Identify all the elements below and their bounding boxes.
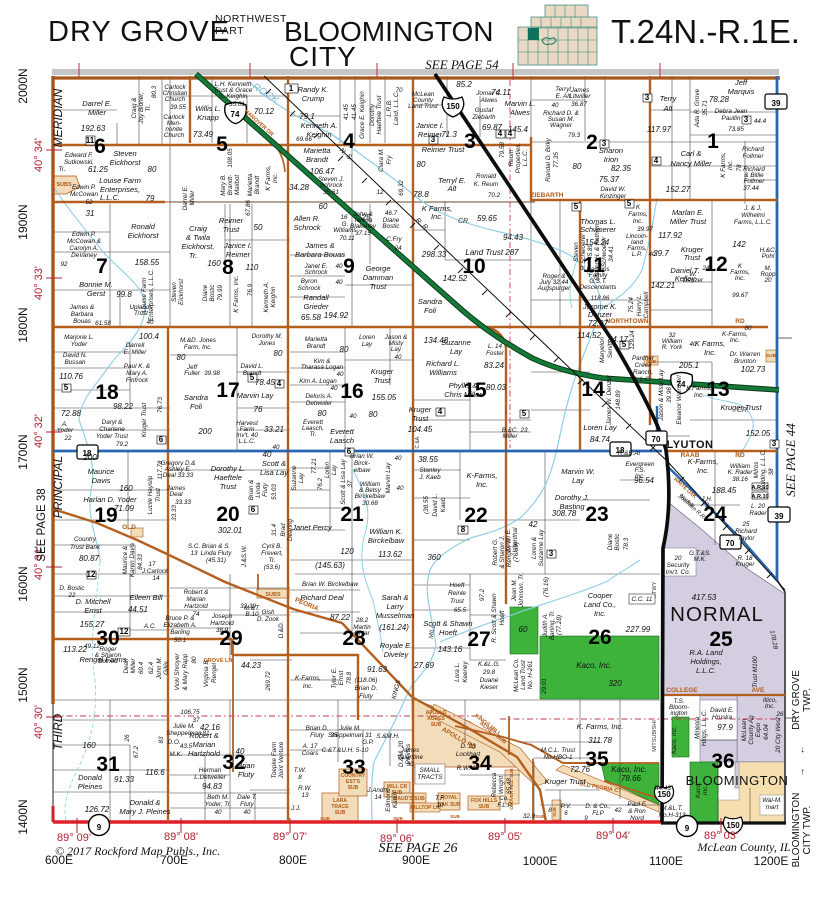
svg-text:OLD: OLD [122,524,136,531]
svg-text:Debra Jean: Debra Jean [715,108,748,115]
svg-text:Kruger: Kruger [409,405,432,414]
svg-text:Ernst: Ernst [84,606,102,615]
svg-text:1500N: 1500N [16,667,30,702]
svg-text:(77.28): (77.28) [556,615,563,635]
svg-text:Holdings,: Holdings, [690,657,721,666]
svg-text:142.21: 142.21 [651,281,675,290]
svg-text:Gerst: Gerst [87,289,106,298]
svg-text:Marvin L.: Marvin L. [505,99,536,108]
svg-text:Kaco, Inc.: Kaco, Inc. [611,765,647,774]
svg-text:31.4: 31.4 [271,523,278,536]
svg-text:Wright: Wright [498,776,505,794]
svg-text:Jeff: Jeff [734,78,748,87]
svg-text:Virginia B.: Virginia B. [203,659,210,688]
svg-text:Steven: Steven [113,149,136,158]
svg-text:78.8: 78.8 [413,190,429,199]
svg-text:D. 23: D. 23 [460,743,476,750]
svg-text:S. Keighin: S. Keighin [219,93,248,100]
svg-text:Louise Farm: Louise Farm [141,278,148,313]
svg-text:Maurice: Maurice [88,467,115,476]
svg-text:SEE PAGE 26: SEE PAGE 26 [378,841,457,856]
svg-text:Maurice &: Maurice & [122,546,129,574]
svg-text:Hoeft: Hoeft [499,610,506,625]
svg-text:Grieder: Grieder [303,302,329,311]
svg-text:155.05: 155.05 [372,393,397,402]
svg-text:Alwes: Alwes [480,97,499,104]
svg-text:Linda: Linda [255,482,262,498]
svg-text:Enterprises, L.L.C.: Enterprises, L.L.C. [148,269,155,321]
svg-text:T.F.: T.F. [435,795,445,802]
svg-text:Royale E.: Royale E. [380,641,413,650]
svg-text:Foli: Foli [424,306,436,315]
svg-text:26: 26 [124,734,131,743]
svg-text:24: 24 [393,245,402,252]
svg-text:Marvin Lay: Marvin Lay [237,391,275,400]
svg-text:320: 320 [608,679,622,688]
svg-text:Gillis: Gillis [163,660,170,674]
svg-text:Farm, Inc.: Farm, Inc. [184,344,212,351]
svg-text:Kenneth A.: Kenneth A. [263,282,270,313]
svg-text:5: 5 [574,202,579,211]
svg-text:78.8: 78.8 [346,671,353,684]
svg-text:74: 74 [231,110,240,119]
svg-text:150: 150 [726,821,740,830]
svg-text:78: 78 [736,164,743,172]
svg-text:Elizabeth A.: Elizabeth A. [163,622,196,629]
svg-text:J. Kaeb: J. Kaeb [418,474,441,481]
svg-text:35.01: 35.01 [229,101,245,108]
svg-text:24: 24 [701,265,710,272]
svg-text:Grace E. Keighin: Grace E. Keighin [359,91,366,139]
svg-text:9: 9 [685,824,690,833]
svg-text:Bostic: Bostic [614,533,621,551]
svg-text:Birckelbaw: Birckelbaw [368,536,405,545]
svg-text:94.43: 94.43 [503,233,524,242]
svg-text:Inc.: Inc. [476,480,488,489]
svg-text:MITSUBISHI: MITSUBISHI [652,720,658,752]
svg-text:William K.: William K. [369,527,402,536]
svg-text:James &: James & [304,241,334,250]
svg-text:46.7: 46.7 [385,210,398,217]
svg-text:Tr.: Tr. [269,557,276,564]
svg-text:89° 08': 89° 08' [164,831,198,843]
svg-text:Bouas: Bouas [73,318,92,325]
svg-text:Trust: Trust [374,376,391,385]
svg-text:R.W. 13: R.W. 13 [457,765,480,772]
svg-text:Richard: Richard [742,146,764,153]
svg-text:Campbell: Campbell [643,291,650,318]
svg-text:Eickhorst: Eickhorst [128,231,160,240]
svg-text:Brandt: Brandt [307,343,326,350]
svg-text:40: 40 [335,279,343,286]
svg-text:SMALL: SMALL [420,767,441,774]
svg-text:Hartzold: Hartzold [184,603,208,610]
svg-text:53.03: 53.03 [271,484,278,500]
svg-text:No. H-261: No. H-261 [527,661,534,690]
svg-text:SUB: SUB [450,814,460,819]
svg-text:Land Trust 287: Land Trust 287 [465,248,519,257]
svg-text:7: 7 [96,255,108,278]
svg-text:148.89: 148.89 [615,390,622,410]
svg-text:188.45: 188.45 [712,486,737,495]
svg-text:75.24: 75.24 [628,297,635,313]
svg-text:Tr.: Tr. [59,166,66,173]
svg-text:M.&D. Jones: M.&D. Jones [180,337,217,344]
svg-text:71.3: 71.3 [441,130,457,139]
svg-text:Mary A.: Mary A. [126,370,147,377]
svg-text:K-Farms,: K-Farms, [688,457,719,466]
svg-text:1600N: 1600N [16,566,30,601]
svg-text:89° 04': 89° 04' [596,830,630,842]
svg-text:Diane: Diane [202,284,209,301]
svg-text:2: 2 [704,502,709,509]
svg-text:360: 360 [427,553,441,562]
svg-text:79: 79 [146,194,155,203]
svg-text:Rengel: Rengel [211,662,218,683]
svg-text:Schrock: Schrock [298,285,322,292]
svg-text:79.3: 79.3 [568,132,581,139]
svg-text:Duane: Duane [480,677,499,684]
svg-text:Inc.: Inc. [594,609,606,618]
svg-text:Church: Church [165,96,186,103]
svg-text:Louise Farm: Louise Farm [99,176,141,185]
svg-text:9: 9 [97,823,102,832]
svg-text:Brandt-: Brandt- [227,175,234,196]
svg-text:80: 80 [274,349,283,358]
svg-text:13: 13 [301,792,309,799]
svg-text:SUB: SUB [335,810,346,816]
svg-text:20 City West: 20 City West [775,717,782,754]
svg-text:106.47: 106.47 [310,167,335,176]
svg-text:Eickhorst: Eickhorst [110,158,142,167]
svg-text:Dorothy M.: Dorothy M. [252,333,283,340]
svg-text:Eileen Bill: Eileen Bill [130,593,163,602]
svg-text:Barling: Barling [170,629,190,636]
svg-text:298.33: 298.33 [421,250,447,259]
svg-text:(161.24): (161.24) [379,623,409,632]
svg-text:41.45: 41.45 [343,104,350,120]
svg-text:PART: PART [215,25,244,37]
svg-text:Darrell: Darrell [126,342,145,349]
svg-text:Rengel, Tr.: Rengel, Tr. [506,537,513,567]
svg-text:32.9: 32.9 [523,813,536,820]
svg-text:Marian: Marian [186,596,206,603]
svg-text:C.&T.&U.H. 5-10: C.&T.&U.H. 5-10 [322,747,369,754]
svg-text:L.L.C.: L.L.C. [239,438,256,445]
svg-text:Diane: Diane [607,533,614,550]
svg-text:Pleines: Pleines [405,743,412,765]
svg-text:79.2: 79.2 [116,441,129,448]
svg-text:38: 38 [768,468,775,476]
svg-text:Taylor: Taylor [738,535,756,542]
svg-text:M.K.: M.K. [694,556,707,563]
svg-text:40: 40 [336,371,344,378]
svg-text:L.P.: L.P. [632,251,642,258]
svg-text:Kruger: Kruger [371,367,394,376]
svg-text:Foster: Foster [486,350,505,357]
svg-text:Harlan D. Yoder: Harlan D. Yoder [83,495,137,504]
svg-text:80: 80 [191,656,198,664]
svg-text:Brian W.: Brian W. [350,453,374,460]
svg-text:39: 39 [772,99,781,108]
svg-text:Marian: Marian [193,740,216,749]
svg-text:Brian D.: Brian D. [306,725,329,732]
svg-text:Jason & Misty Lay: Jason & Misty Lay [658,369,665,422]
svg-text:40: 40 [396,485,404,492]
svg-text:Byron: Byron [301,278,318,285]
svg-text:Alt: Alt [447,184,458,193]
svg-text:PRINCIPAL: PRINCIPAL [51,456,65,518]
svg-text:Jomar C.: Jomar C. [475,90,502,97]
svg-text:152.05: 152.05 [746,429,771,438]
svg-text:SUBS: SUBS [56,182,72,188]
svg-text:Knapp: Knapp [197,113,219,122]
svg-text:No.HBO-1: No.HBO-1 [543,754,572,761]
svg-text:25: 25 [741,521,750,528]
svg-text:160: 160 [207,259,221,268]
svg-text:Reimer: Reimer [418,130,443,139]
svg-text:Ranch,: Ranch, [633,369,653,376]
svg-text:Allen R.: Allen R. [293,214,320,223]
svg-text:& Mary Rapp: & Mary Rapp [182,653,189,690]
svg-text:Sharon: Sharon [599,146,623,155]
svg-text:Marlan E.: Marlan E. [672,208,704,217]
svg-text:65.48: 65.48 [506,778,513,794]
svg-text:Bostic: Bostic [382,223,400,230]
svg-text:Inc.: Inc. [431,212,443,221]
svg-text:113.62: 113.62 [378,550,402,559]
svg-text:Judith A.: Judith A. [542,613,549,638]
svg-text:K. Farms, Inc.: K. Farms, Inc. [577,722,624,731]
svg-text:3: 3 [744,115,749,124]
svg-text:→: → [796,768,806,777]
svg-text:Yoder, Tr.: Yoder, Tr. [205,801,232,808]
svg-text:205.1: 205.1 [678,361,699,370]
svg-text:4: 4 [654,156,659,165]
svg-text:2: 2 [586,131,598,154]
svg-text:150: 150 [446,102,460,111]
svg-text:23: 23 [519,427,528,434]
svg-text:308.78: 308.78 [552,509,577,518]
svg-text:Jones: Jones [258,340,277,347]
svg-text:Paul F.: Paul F. [627,801,646,808]
svg-text:L.L.C.: L.L.C. [522,150,529,167]
svg-text:Fluty: Fluty [359,693,373,700]
svg-text:Keighin: Keighin [270,286,277,308]
svg-text:Dale T.: Dale T. [237,794,257,801]
svg-text:Lockhart: Lockhart [456,751,480,758]
svg-text:NORTHWEST: NORTHWEST [215,13,287,25]
svg-text:Tr.: Tr. [310,431,317,438]
svg-text:91.63: 91.63 [367,665,388,674]
svg-text:(53.6): (53.6) [264,564,280,571]
svg-text:50.1: 50.1 [174,637,186,644]
svg-text:Scott & Lisa Lay: Scott & Lisa Lay [340,458,347,504]
svg-text:Church: Church [164,132,185,139]
svg-text:40: 40 [648,251,656,258]
svg-text:60.4: 60.4 [138,661,145,674]
svg-text:92: 92 [60,261,68,268]
svg-text:120: 120 [340,547,354,556]
svg-text:Cyril B.: Cyril B. [262,543,282,550]
svg-text:Eickhorst: Eickhorst [178,279,185,305]
svg-text:Cooper: Cooper [588,591,613,600]
svg-text:72.76: 72.76 [570,765,591,774]
svg-text:Reinle: Reinle [448,590,466,597]
svg-text:Mary J. Pleines: Mary J. Pleines [119,807,171,816]
svg-text:4: 4 [277,379,282,388]
svg-text:Randy K.: Randy K. [298,85,329,94]
svg-text:39.98: 39.98 [204,370,220,377]
svg-text:Kaco, Inc.: Kaco, Inc. [671,726,678,754]
svg-text:Larry: Larry [386,602,404,611]
svg-text:89° 07': 89° 07' [273,831,307,843]
svg-text:Mailbot: Mailbot [234,175,241,196]
svg-text:CITY: CITY [289,41,357,72]
svg-text:97.2: 97.2 [479,588,486,601]
svg-text:Blakeney: Blakeney [350,223,377,230]
svg-text:89° 09': 89° 09' [57,832,91,844]
svg-text:99.8: 99.8 [116,290,132,299]
svg-text:Lay: Lay [362,341,373,348]
svg-text:TRACTS: TRACTS [417,774,443,781]
svg-text:C.&A.: C.&A. [415,435,421,448]
svg-text:CITY TWP.: CITY TWP. [802,806,813,855]
svg-text:Scott &: Scott & [262,459,286,468]
svg-text:59.65: 59.65 [477,214,498,223]
svg-text:K. Reum: K. Reum [474,181,499,188]
svg-text:33.21: 33.21 [264,425,284,434]
svg-text:Kim A. Logan: Kim A. Logan [299,378,337,385]
svg-text:LYUTON: LYUTON [666,439,713,451]
svg-text:33.39: 33.39 [240,603,256,610]
svg-text:Ziebarth: Ziebarth [471,114,496,121]
svg-text:17: 17 [148,561,156,568]
svg-text:K Farms,: K Farms, [695,339,725,348]
svg-text:Loren: Loren [324,461,331,478]
svg-text:David E.: David E. [710,707,734,714]
svg-text:D.&M. 20: D.&M. 20 [398,740,405,767]
svg-text:6: 6 [94,135,106,158]
svg-text:Terryl: Terryl [555,86,571,93]
svg-text:Fry: Fry [386,155,393,165]
svg-text:Randall: Randall [303,293,329,302]
svg-text:70.2: 70.2 [488,192,501,199]
svg-text:117.97: 117.97 [647,125,671,134]
svg-text:80: 80 [369,410,378,419]
svg-text:D.O.: D.O. [168,739,181,746]
svg-text:Schrock: Schrock [305,269,329,276]
svg-text:Lisa Lay: Lisa Lay [260,468,289,477]
svg-text:114.52: 114.52 [577,331,601,340]
svg-text:Inc.: Inc. [765,703,775,710]
svg-text:Sarah &: Sarah & [381,593,408,602]
svg-text:Marquis: Marquis [728,87,755,96]
svg-text:T.W.: T.W. [294,767,306,774]
svg-text:91.33: 91.33 [114,775,135,784]
svg-text:Steven: Steven [171,282,178,302]
svg-text:K Farms, Inc.: K Farms, Inc. [233,275,240,312]
svg-text:42: 42 [614,807,622,814]
svg-text:27: 27 [467,628,490,651]
svg-text:Yoder: Yoder [71,341,88,348]
svg-text:Inc.: Inc. [272,173,279,183]
svg-text:22: 22 [67,592,76,599]
svg-text:Hoeft: Hoeft [439,628,458,637]
svg-text:22: 22 [464,504,487,527]
svg-text:60: 60 [519,625,528,634]
svg-text:311.78: 311.78 [588,736,612,745]
svg-text:(38.55: (38.55 [423,496,430,514]
svg-text:Lora L.: Lora L. [454,662,461,682]
svg-text:Inc.: Inc. [633,218,643,225]
svg-text:Loren &: Loren & [531,537,538,559]
svg-text:80: 80 [417,160,426,169]
svg-text:80: 80 [148,165,157,174]
svg-text:NORMAL: NORMAL [670,603,764,626]
svg-text:73.49: 73.49 [193,130,214,139]
svg-text:Trust Bank: Trust Bank [70,544,101,551]
svg-text:Brian W. Birckelbaw: Brian W. Birckelbaw [302,581,359,588]
svg-text:36.87: 36.87 [571,101,587,108]
svg-text:40: 40 [236,747,245,756]
svg-text:Hldgs, L.L.C.: Hldgs, L.L.C. [701,710,708,746]
svg-text:Schwoerer: Schwoerer [601,236,608,267]
svg-text:40° 32': 40° 32' [33,414,45,448]
svg-text:60: 60 [319,202,328,211]
svg-text:18: 18 [95,381,119,404]
svg-text:Darrel E.: Darrel E. [182,186,189,211]
svg-text:77.35: 77.35 [553,152,560,168]
svg-text:Marvin Lay: Marvin Lay [385,462,392,494]
svg-text:R.W.: R.W. [298,785,312,792]
svg-text:Country: Country [74,536,97,543]
svg-text:Keeney: Keeney [462,660,469,682]
svg-text:12: 12 [376,189,384,196]
svg-text:Davis: Davis [92,476,111,485]
svg-text:Joseph: Joseph [211,613,233,620]
svg-text:S.C.: S.C. [188,543,200,550]
svg-text:Vicki Shroyer: Vicki Shroyer [174,653,181,691]
svg-text:79.58: 79.58 [499,142,506,158]
svg-text:71.09: 71.09 [114,504,135,513]
svg-text:Darrel E.: Darrel E. [82,99,112,108]
svg-text:20: 20 [673,555,682,562]
svg-text:37.44: 37.44 [743,185,759,192]
svg-text:417.53: 417.53 [692,593,717,602]
svg-text:Ernst: Ernst [338,670,345,685]
svg-text:J.Carlock: J.Carlock [141,568,169,575]
svg-text:94.83: 94.83 [202,782,223,791]
svg-text:33.33: 33.33 [171,505,178,521]
svg-text:Janice I.: Janice I. [223,241,252,250]
svg-text:Craig: Craig [189,224,208,233]
svg-text:12: 12 [120,627,129,636]
svg-text:Eleanor Wainzierl: Eleanor Wainzierl [676,375,683,425]
svg-text:39.7: 39.7 [653,249,669,258]
svg-text:110: 110 [246,263,259,272]
svg-text:Barbara: Barbara [71,311,94,318]
svg-text:Maryelon: Maryelon [599,337,606,363]
svg-text:(76.59): (76.59) [513,542,520,562]
svg-text:Marietta: Marietta [303,146,330,155]
svg-text:Everett: Everett [330,427,355,436]
svg-text:McLean: McLean [741,718,748,741]
svg-text:Finfrock: Finfrock [126,377,149,384]
svg-text:21: 21 [340,503,364,526]
svg-text:Co.,: Co., [499,795,511,802]
svg-text:Brian: Brian [237,761,255,770]
